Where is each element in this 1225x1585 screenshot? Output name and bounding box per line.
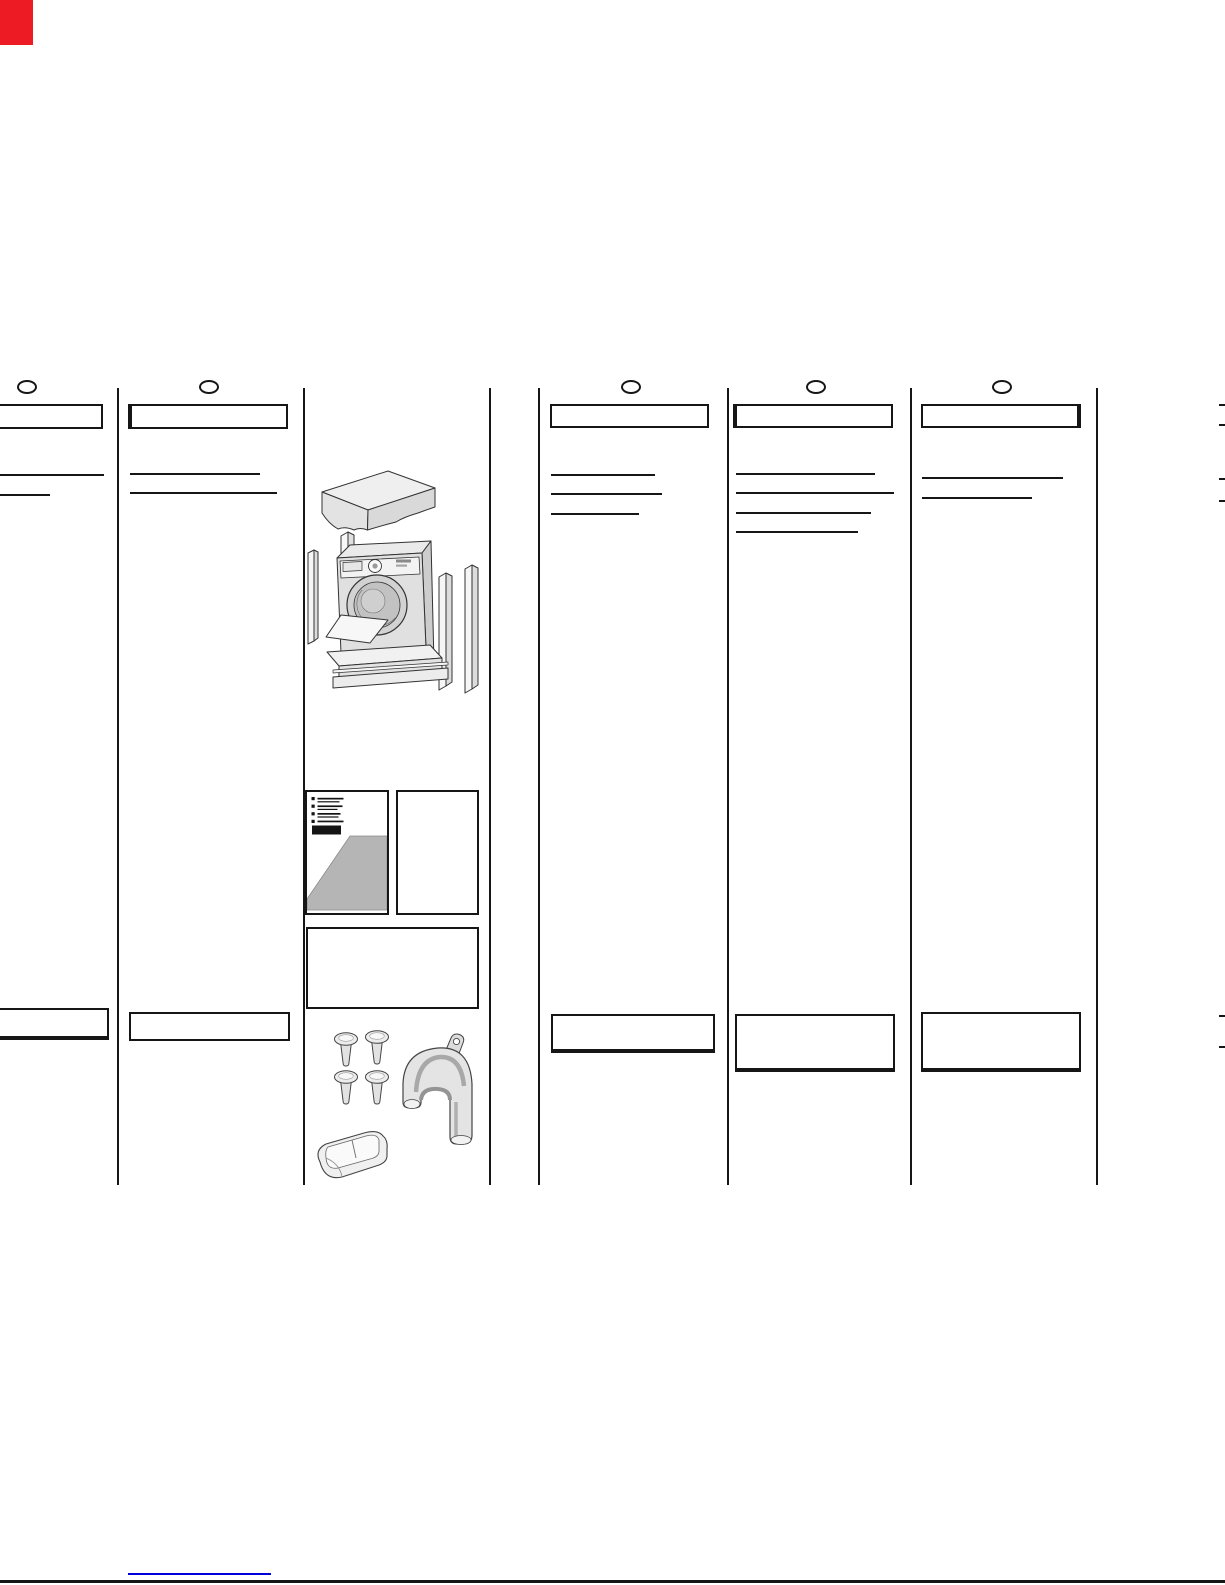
column-1-text-underline: [0, 474, 104, 476]
column-2-header-box: [128, 404, 288, 429]
detergent-drawer: [343, 562, 362, 572]
transit-hole-caps: [335, 1031, 389, 1104]
column-4-header-box: [733, 404, 893, 428]
warranty-card-box: [397, 791, 478, 914]
polystyrene-base: [327, 645, 448, 688]
column-3-header-box: [550, 404, 709, 428]
carton-lid: [322, 471, 435, 530]
page-edge-mark: [1219, 424, 1225, 426]
column-3-marker-ellipse: [621, 380, 641, 394]
column-divider: [117, 388, 119, 1185]
column-5-marker-ellipse: [992, 380, 1012, 394]
column-divider: [538, 388, 540, 1185]
column-4-marker-ellipse: [806, 380, 826, 394]
column-3-text-underline: [551, 513, 639, 515]
column-3-text-underline: [551, 474, 655, 476]
page-edge-mark: [1219, 404, 1225, 406]
drain-hose-bracket: [403, 1034, 472, 1145]
column-5-text-underline: [922, 477, 1063, 479]
column-4-footer-box: [735, 1014, 895, 1072]
page: [0, 0, 1225, 1585]
column-4-text-underline: [736, 531, 858, 533]
leaflet-title-bar: [312, 826, 341, 835]
instruction-leaflet-box: [306, 791, 388, 914]
column-1-text-underline: [0, 494, 50, 496]
column-5-text-underline: [922, 497, 1032, 499]
column-2-text-underline: [130, 492, 277, 494]
column-3-text-underline: [551, 493, 662, 495]
column-1-marker-ellipse: [17, 380, 37, 394]
detergent-scoop-tray: [318, 1132, 387, 1178]
column-1-footer-box: [0, 1008, 109, 1040]
illustration-column: [300, 450, 490, 1185]
page-edge-mark: [1219, 1015, 1225, 1017]
column-4-text-underline: [736, 473, 875, 475]
page-corner-tab: [0, 0, 33, 45]
page-edge-mark: [1219, 478, 1225, 480]
column-2-footer-box: [129, 1012, 290, 1041]
column-2-marker-ellipse: [199, 380, 219, 394]
page-edge-mark: [1219, 500, 1225, 502]
column-2-text-underline: [130, 473, 260, 475]
column-5-header-box: [921, 404, 1081, 428]
leaflet-bullet-list: [312, 797, 344, 823]
hyperlink-underline[interactable]: [128, 1573, 271, 1575]
column-4-text-underline: [736, 492, 894, 494]
column-3-footer-box: [551, 1014, 715, 1053]
column-1-header-box: [0, 404, 103, 429]
column-divider: [727, 388, 729, 1185]
column-divider: [910, 388, 912, 1185]
leaflet-floor-shade: [307, 836, 387, 910]
column-divider: [303, 388, 305, 1185]
column-divider: [1096, 388, 1098, 1185]
column-5-footer-box: [921, 1012, 1081, 1072]
column-divider: [489, 388, 491, 1185]
page-bottom-edge: [0, 1580, 1225, 1583]
column-4-text-underline: [736, 512, 871, 514]
page-edge-mark: [1219, 1046, 1225, 1048]
packaging-exploded-view: [308, 471, 478, 693]
note-box: [307, 928, 478, 1008]
